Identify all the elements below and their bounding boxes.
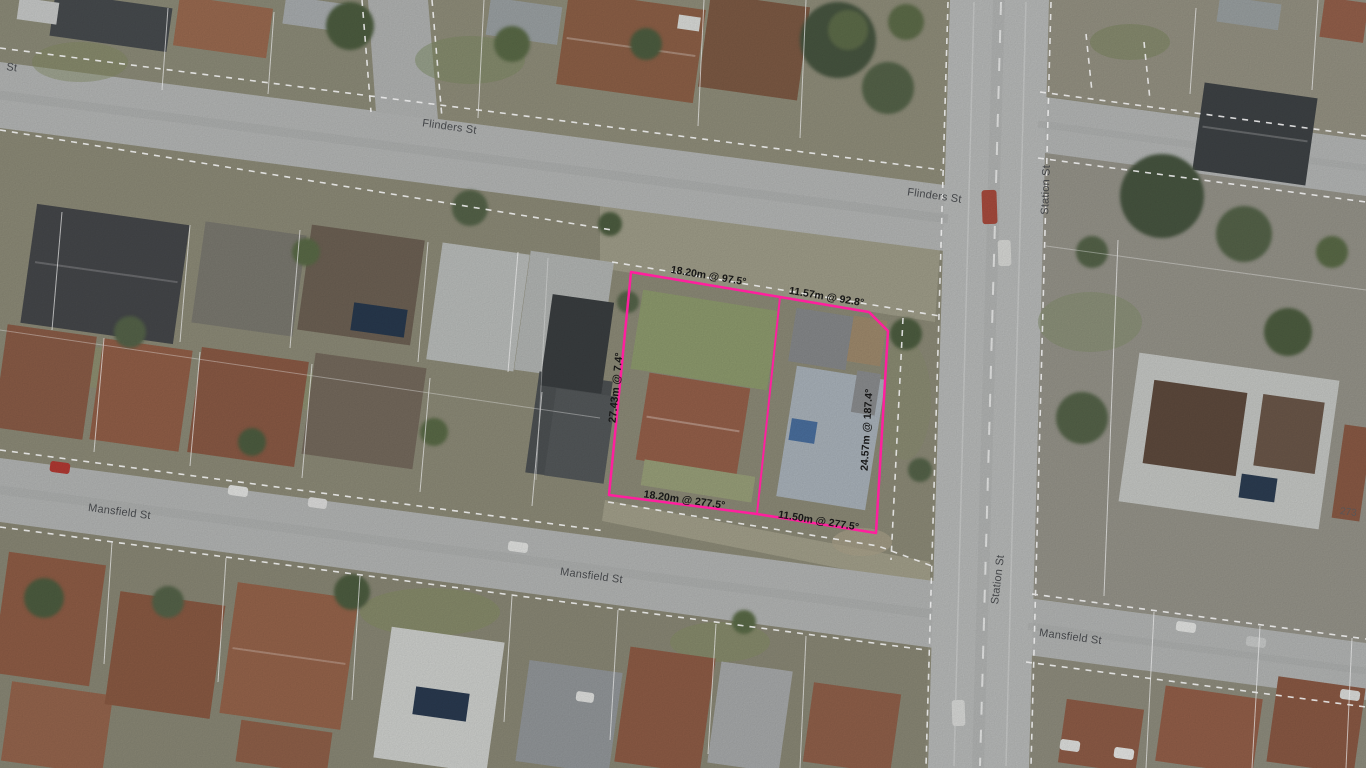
aerial-imagery: St Flinders St Flinders St Station St St… bbox=[0, 0, 1366, 768]
house-number-label: 273 bbox=[1339, 506, 1357, 519]
map-canvas[interactable]: St Flinders St Flinders St Station St St… bbox=[0, 0, 1366, 768]
street-label-station-north: Station St bbox=[1039, 165, 1053, 215]
street-label-partial: St bbox=[6, 61, 18, 74]
imagery-texture bbox=[0, 0, 1366, 768]
